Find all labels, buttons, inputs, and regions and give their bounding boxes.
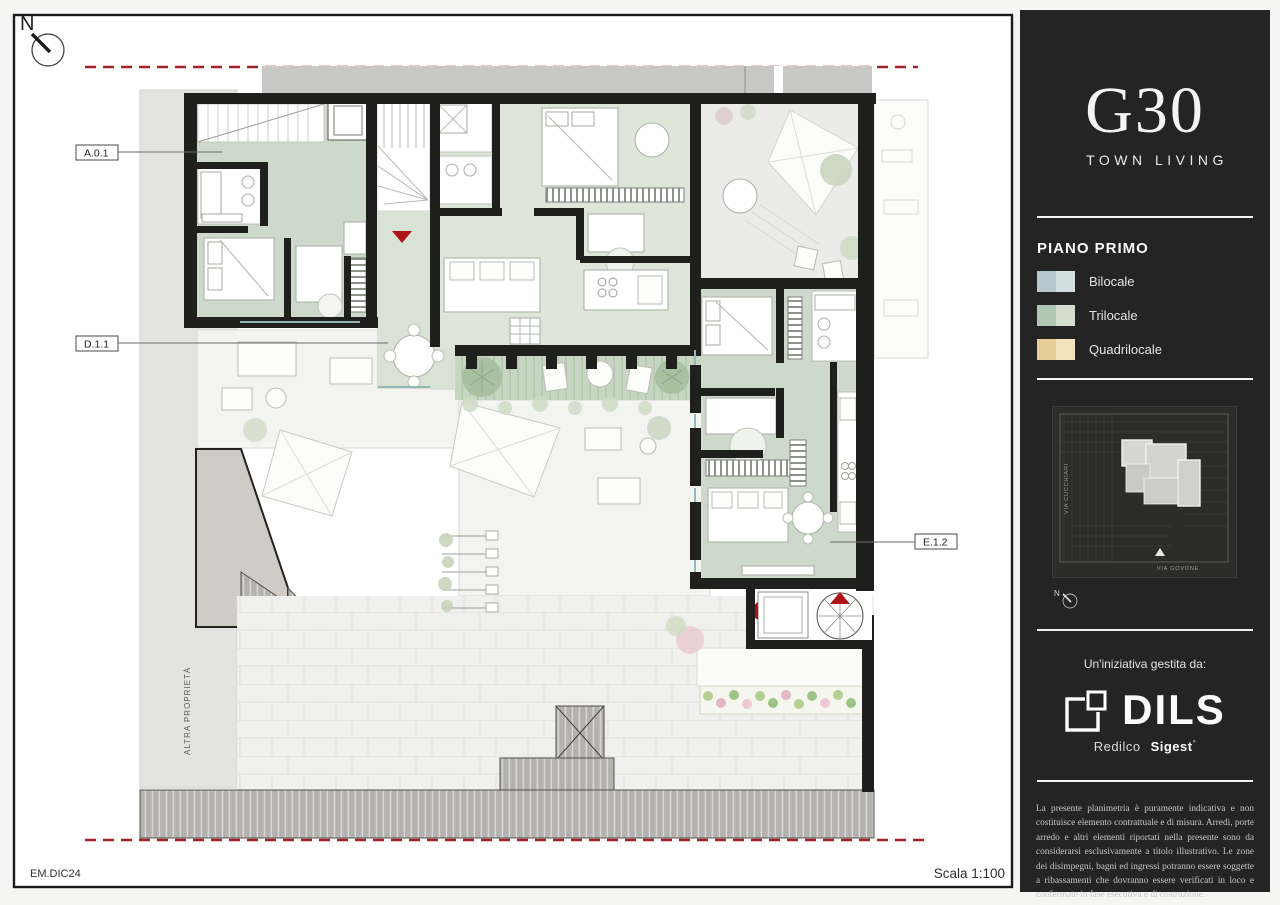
roof-terrace-right	[701, 104, 864, 281]
redilco-label: Redilco	[1094, 739, 1141, 754]
legend: BilocaleTrilocaleQuadrilocale	[1020, 271, 1270, 360]
sub-brands: RedilcoSigest°	[1020, 739, 1270, 754]
divider	[1037, 378, 1253, 380]
unit-center-rooms	[437, 103, 692, 348]
dils-logo-icon	[1064, 687, 1110, 733]
other-property-label: ALTRA PROPRIETÀ	[183, 667, 192, 755]
floor-plan-sheet: N ALTRA PROPRIETÀ	[0, 0, 1020, 905]
initiative-intro: Un'iniziativa gestita da:	[1020, 657, 1270, 671]
legend-label: Bilocale	[1089, 274, 1135, 289]
sigest-mark: °	[1193, 739, 1197, 748]
footer-scale: Scala 1:100	[934, 866, 1005, 881]
brand-logo: G30	[1048, 78, 1242, 144]
legend-title: PIANO PRIMO	[1037, 240, 1253, 257]
brand-block: G30 TOWN LIVING	[1020, 78, 1270, 170]
brand-tagline: TOWN LIVING	[1048, 152, 1228, 168]
dils-logo-text: DILS	[1122, 689, 1226, 731]
footer-code: EM.DIC24	[30, 868, 81, 880]
stair-room-bottom	[746, 589, 872, 640]
svg-text:E.1.2: E.1.2	[923, 537, 948, 549]
sidebar: G30 TOWN LIVING PIANO PRIMO BilocaleTril…	[1020, 10, 1270, 892]
minimap-compass-icon: N	[1052, 586, 1092, 612]
legend-item-trilocale: Trilocale	[1037, 305, 1253, 326]
page: N ALTRA PROPRIETÀ	[0, 0, 1280, 905]
sigest-label: Sigest	[1151, 739, 1193, 754]
legend-label: Trilocale	[1089, 308, 1138, 323]
street-left-label: VIA CUCCHIARI	[1064, 463, 1070, 514]
legend-swatch	[1037, 339, 1075, 360]
minimap-svg: VIA CUCCHIARI VIA GOVONE	[1052, 406, 1237, 578]
divider	[1037, 780, 1253, 782]
legend-item-quadrilocale: Quadrilocale	[1037, 339, 1253, 360]
svg-text:D.1.1: D.1.1	[84, 339, 109, 351]
roof-band-top	[262, 66, 872, 95]
dils-logo: DILS	[1020, 687, 1270, 733]
svg-text:N: N	[1054, 589, 1060, 598]
divider	[1037, 629, 1253, 631]
legend-label: Quadrilocale	[1089, 342, 1162, 357]
disclaimer-text: La presente planimetria è puramente indi…	[1036, 802, 1254, 903]
legend-item-bilocale: Bilocale	[1037, 271, 1253, 292]
street-bottom-label: VIA GOVONE	[1157, 566, 1199, 572]
legend-swatch	[1037, 305, 1075, 326]
legend-swatch	[1037, 271, 1075, 292]
location-minimap: VIA CUCCHIARI VIA GOVONE N	[1052, 406, 1253, 617]
divider	[1037, 216, 1253, 218]
svg-text:A.0.1: A.0.1	[84, 148, 109, 160]
neighbour-strip	[874, 100, 928, 358]
north-label: N	[20, 13, 34, 35]
